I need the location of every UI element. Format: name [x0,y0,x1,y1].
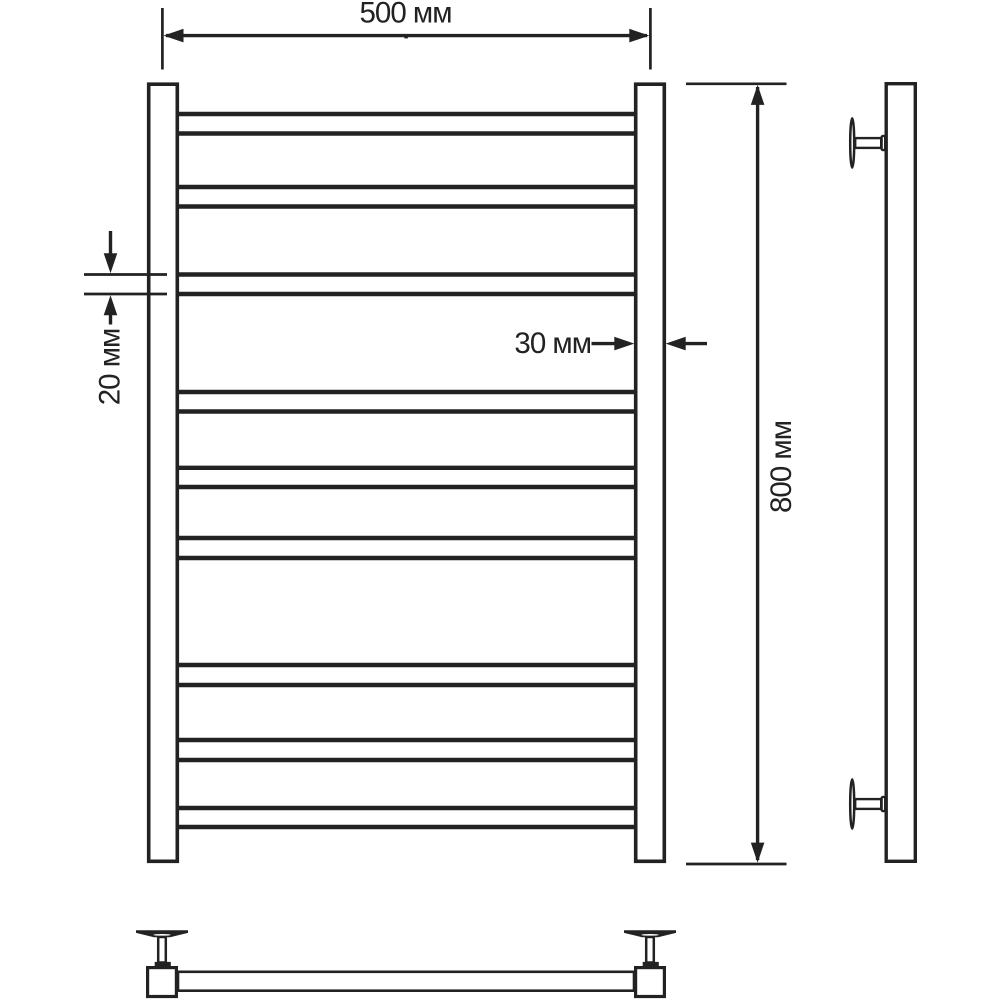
svg-text:20 мм: 20 мм [94,329,127,406]
svg-text:500 мм: 500 мм [360,0,452,30]
svg-text:30 мм: 30 мм [514,327,591,360]
svg-text:800 мм: 800 мм [765,421,798,513]
